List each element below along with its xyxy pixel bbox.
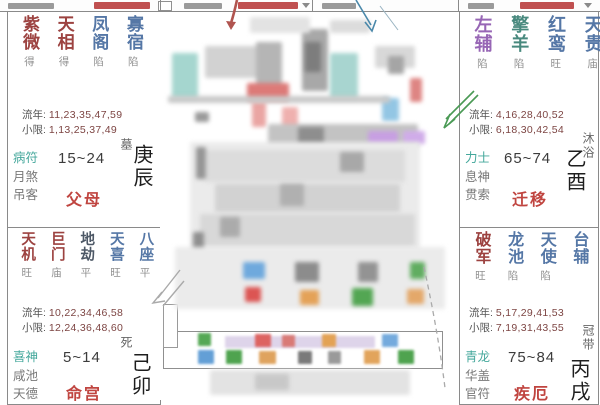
star-column: 天贵庙: [574, 15, 600, 71]
star-brightness: 平: [81, 265, 92, 280]
toolbar-text-fragment: [94, 2, 150, 9]
star-name: 紫微: [21, 15, 38, 51]
star-column: 天相得: [47, 15, 82, 69]
mosaic-block: [330, 53, 358, 99]
year-limit-lines: 流年: 10,22,34,46,58 小限: 12,24,36,48,60: [22, 306, 123, 336]
mosaic-block: [388, 56, 404, 74]
mosaic-block: [398, 350, 414, 364]
mosaic-block: [196, 147, 206, 179]
mosaic-block: [364, 350, 380, 364]
mosaic-block: [410, 262, 425, 279]
dropdown-arrow-icon[interactable]: [302, 3, 310, 8]
star-name: 寡宿: [125, 15, 142, 51]
xiaoxian-values: 7,19,31,43,55: [496, 322, 564, 334]
mosaic-block: [328, 351, 341, 364]
star-column: 凤阁陷: [81, 15, 116, 69]
star-list: 破军旺龙池陷天使陷台辅旬空陷华盖平: [460, 228, 598, 283]
god-item: 青龙: [465, 348, 490, 367]
palace-travel[interactable]: 左辅陷擎羊陷红鸾旺天贵庙天才旺 流年: 4,16,28,40,52 小限: 6,…: [459, 11, 599, 228]
god-item: 病符: [13, 149, 38, 168]
mosaic-block: [295, 262, 319, 282]
liunian-values: 5,17,29,41,53: [496, 307, 564, 319]
star-column: 天机旺: [12, 231, 42, 280]
ziwei-chart-screenshot: { "colors": { "star_red": "#9c4240", "st…: [0, 0, 600, 400]
toolbar-text-fragment: [468, 3, 494, 9]
mosaic-block: [407, 289, 424, 304]
toolbar-text-fragment: [8, 3, 54, 9]
star-brightness: 陷: [540, 268, 551, 283]
star-name: 天机: [19, 231, 34, 262]
xiaoxian-label: 小限:: [22, 322, 46, 334]
mosaic-block: [195, 112, 209, 122]
mosaic-block: [305, 42, 321, 72]
star-column: 寡宿陷: [116, 15, 151, 69]
star-brightness: 旺: [551, 56, 562, 71]
mosaic-block: [210, 370, 410, 395]
god-item: 天德: [13, 385, 38, 404]
xiaoxian-values: 6,18,30,42,54: [496, 124, 564, 136]
mosaic-block: [282, 335, 295, 347]
toolbar-divider: [458, 0, 459, 11]
mosaic-block: [255, 334, 271, 347]
star-name: 天使: [537, 231, 553, 265]
toolbar-divider: [160, 0, 161, 11]
xiaoxian-label: 小限:: [22, 124, 46, 136]
star-brightness: 旺: [22, 265, 33, 280]
star-name: 台辅: [570, 231, 586, 265]
star-name: 地劫: [79, 231, 94, 262]
star-brightness: 庙: [587, 56, 598, 71]
star-brightness: 陷: [128, 54, 139, 69]
star-column: 红鸾旺: [537, 15, 574, 71]
dropdown-arrow-icon[interactable]: [584, 3, 592, 8]
star-brightness: 庙: [51, 265, 62, 280]
star-column: 龙池陷: [497, 231, 530, 283]
star-column: 破军旺: [464, 231, 497, 283]
star-name: 八座: [138, 231, 153, 262]
palace-health[interactable]: 破军旺龙池陷天使陷台辅旬空陷华盖平 流年: 5,17,29,41,53 小限: …: [459, 227, 599, 405]
star-name: 擎羊: [510, 15, 528, 53]
mosaic-block: [168, 96, 390, 103]
god-item: 咸池: [13, 367, 38, 386]
liunian-values: 10,22,34,46,58: [49, 307, 123, 319]
star-list: 左辅陷擎羊陷红鸾旺天贵庙天才旺: [460, 12, 598, 71]
palace-life[interactable]: 天机旺巨门庙地劫平天喜旺八座平天月咸池平天德平 流年: 10,22,34,46,…: [7, 227, 161, 405]
star-brightness: 旺: [475, 268, 486, 283]
year-limit-lines: 流年: 4,16,28,40,52 小限: 6,18,30,42,54: [469, 108, 564, 138]
mosaic-block: [280, 184, 304, 206]
god-list: 病符 月煞 吊客: [13, 149, 38, 205]
censored-box: [163, 304, 178, 348]
mosaic-block: [205, 150, 405, 182]
star-brightness: 陷: [93, 54, 104, 69]
mosaic-block: [215, 184, 400, 212]
star-column: 左辅陷: [464, 15, 501, 71]
star-column: 巨门庙: [42, 231, 72, 280]
life-stage: 死: [120, 336, 132, 350]
xiaoxian-values: 12,24,36,48,60: [49, 322, 123, 334]
stem-branch: 庚辰: [131, 144, 151, 190]
xiaoxian-values: 1,13,25,37,49: [49, 124, 117, 136]
star-column: 八座平: [130, 231, 160, 280]
liunian-label: 流年:: [22, 307, 46, 319]
mosaic-block: [245, 287, 261, 302]
star-column: 紫微得: [12, 15, 47, 69]
god-item: 月煞: [13, 168, 38, 187]
mosaic-block: [255, 374, 289, 390]
star-name: 天相: [55, 15, 72, 51]
star-brightness: 平: [140, 265, 151, 280]
mosaic-block: [226, 350, 242, 364]
mosaic-block: [250, 17, 310, 33]
age-range: 5~14: [63, 349, 101, 366]
mosaic-block: [410, 78, 422, 102]
star-name: 凤阁: [90, 15, 107, 51]
liunian-label: 流年:: [22, 109, 46, 121]
mosaic-block: [322, 334, 336, 347]
star-name: 巨门: [49, 231, 64, 262]
stem-branch: 乙酉: [564, 148, 584, 194]
palace-name: 父母: [66, 186, 102, 210]
xiaoxian-label: 小限:: [469, 322, 493, 334]
star-brightness: 得: [24, 54, 35, 69]
age-range: 65~74: [504, 150, 551, 167]
god-item: 华盖: [465, 367, 490, 386]
palace-parents[interactable]: 紫微得天相得凤阁陷寡宿陷阴煞年解庙 流年: 11,23,35,47,59 小限:…: [7, 11, 161, 228]
star-column: 擎羊陷: [501, 15, 538, 71]
mosaic-block: [352, 288, 373, 306]
star-brightness: 陷: [508, 268, 519, 283]
toolbar-text-fragment: [184, 3, 222, 9]
age-range: 75~84: [508, 349, 555, 366]
god-item: 力士: [465, 149, 490, 168]
star-brightness: 得: [59, 54, 70, 69]
star-list: 紫微得天相得凤阁陷寡宿陷阴煞年解庙: [8, 12, 160, 69]
mosaic-block: [358, 262, 378, 282]
toolbar-text-fragment: [238, 2, 298, 9]
god-list: 青龙 华盖 官符: [465, 348, 490, 404]
god-list: 喜神 咸池 天德: [13, 348, 38, 404]
star-column: 天使陷: [529, 231, 562, 283]
toolbar-divider: [312, 0, 313, 11]
toolbar-text-fragment: [520, 2, 574, 9]
star-brightness: 旺: [110, 265, 121, 280]
star-column: 旬空陷: [595, 231, 600, 283]
star-name: 天喜: [108, 231, 123, 262]
mosaic-block: [198, 350, 214, 364]
life-stage: 冠带: [582, 324, 594, 352]
mosaic-block: [298, 351, 312, 364]
mosaic-block: [252, 101, 266, 127]
mosaic-block: [340, 152, 364, 172]
mosaic-block: [220, 217, 240, 237]
censored-center-region: [160, 12, 459, 400]
mosaic-block: [172, 53, 198, 99]
star-brightness: 陷: [477, 56, 488, 71]
star-column: 天喜旺: [101, 231, 131, 280]
year-limit-lines: 流年: 5,17,29,41,53 小限: 7,19,31,43,55: [469, 306, 564, 336]
god-list: 力士 息神 贯索: [465, 149, 490, 205]
palace-name: 疾厄: [514, 380, 550, 404]
star-name: 红鸾: [547, 15, 565, 53]
god-item: 喜神: [13, 348, 38, 367]
mosaic-block: [300, 290, 319, 305]
star-column: 地劫平: [71, 231, 101, 280]
xiaoxian-label: 小限:: [469, 124, 493, 136]
mosaic-block: [225, 336, 375, 348]
star-name: 龙池: [505, 231, 521, 265]
star-column: 台辅: [562, 231, 595, 283]
year-limit-lines: 流年: 11,23,35,47,59 小限: 1,13,25,37,49: [22, 108, 122, 138]
toolbar-text-fragment: [322, 3, 356, 9]
star-name: 天贵: [583, 15, 600, 53]
mosaic-block: [198, 333, 211, 346]
stem-branch: 己卯: [129, 352, 149, 398]
liunian-label: 流年:: [469, 109, 493, 121]
god-item: 官符: [465, 385, 490, 404]
liunian-values: 11,23,35,47,59: [49, 109, 123, 121]
mosaic-block: [330, 20, 370, 33]
palace-name: 迁移: [512, 186, 548, 210]
god-item: 息神: [465, 168, 490, 187]
mosaic-block: [259, 351, 276, 364]
palace-name: 命宫: [66, 380, 102, 404]
star-name: 左辅: [473, 15, 491, 53]
liunian-values: 4,16,28,40,52: [496, 109, 564, 121]
stem-branch: 丙戌: [568, 358, 588, 404]
mosaic-block: [382, 334, 398, 347]
liunian-label: 流年:: [469, 307, 493, 319]
god-item: 吊客: [13, 186, 38, 205]
star-name: 破军: [472, 231, 488, 265]
star-brightness: 陷: [514, 56, 525, 71]
age-range: 15~24: [58, 150, 105, 167]
mosaic-block: [243, 262, 265, 279]
star-list: 天机旺巨门庙地劫平天喜旺八座平天月咸池平天德平: [8, 228, 160, 280]
god-item: 贯索: [465, 186, 490, 205]
